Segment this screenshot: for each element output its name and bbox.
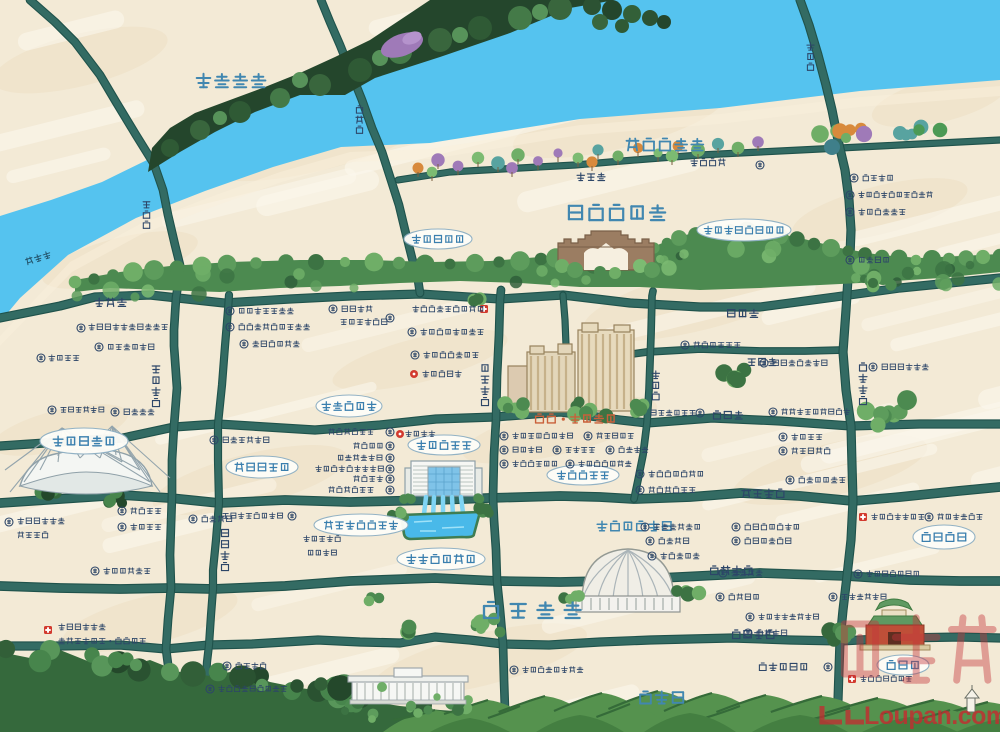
svg-text:Loupan.com: Loupan.com (864, 702, 1000, 730)
